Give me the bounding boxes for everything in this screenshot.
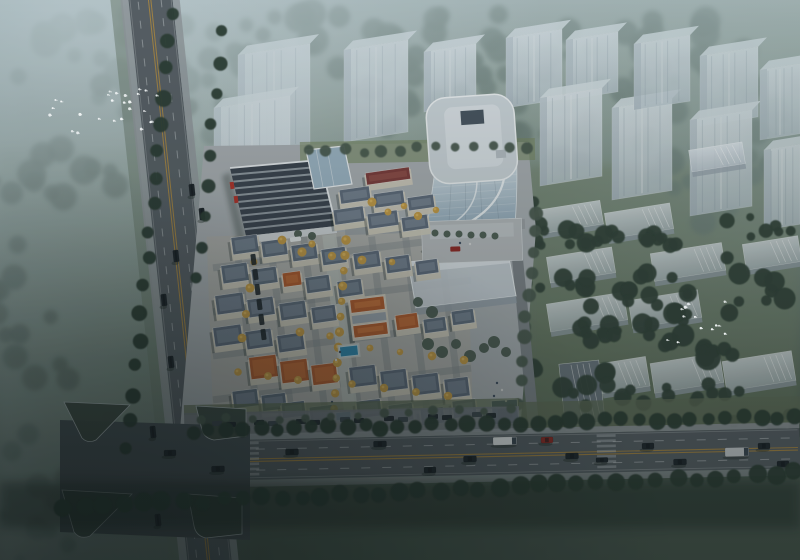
bird [113, 120, 115, 122]
bird [76, 131, 79, 134]
bird-wing [726, 302, 727, 303]
bird [700, 327, 703, 330]
bird-wing [122, 119, 123, 120]
bird-wing [152, 122, 153, 123]
bird-wing [131, 102, 132, 103]
bird [52, 107, 54, 109]
bird-wing [702, 328, 703, 329]
bird-wing [679, 342, 680, 343]
bird-wing [147, 90, 148, 91]
bird [124, 94, 127, 97]
bird [98, 118, 100, 120]
bird-wing [54, 108, 55, 109]
bird [682, 315, 684, 317]
bird-wing [79, 133, 80, 134]
bird [718, 325, 720, 327]
rendering-canvas [0, 0, 800, 560]
bird [140, 128, 143, 131]
bird [143, 110, 145, 112]
bird [715, 324, 717, 326]
bird [111, 99, 114, 102]
bird-wing [683, 309, 684, 310]
bird [687, 303, 690, 306]
bird-wing [686, 307, 687, 308]
bird-wing [115, 121, 116, 122]
bird-wing [56, 100, 57, 101]
bird-wing [158, 95, 159, 96]
bird-wing [62, 101, 63, 102]
bird-wing [140, 89, 141, 90]
bird-wing [100, 119, 101, 120]
bird-wing [111, 91, 112, 92]
bird-wing [668, 340, 669, 341]
bird [680, 308, 682, 310]
bird-wing [109, 95, 110, 96]
bird-wing [142, 129, 143, 130]
bird [60, 101, 62, 103]
bird [54, 99, 56, 101]
bird-wing [117, 93, 118, 94]
bird-wing [139, 94, 140, 95]
bird [71, 130, 73, 132]
bird-wing [684, 316, 685, 317]
bird [128, 107, 131, 110]
aerial-rendering [0, 0, 800, 560]
bird [107, 94, 109, 96]
bird-wing [689, 304, 690, 305]
bird [145, 89, 147, 91]
bird-wing [81, 114, 82, 115]
bird [724, 333, 726, 335]
bird-wing [73, 131, 74, 132]
bird [684, 306, 687, 309]
bird-wing [51, 115, 52, 116]
bird [149, 121, 151, 123]
bird [115, 92, 118, 95]
bird [666, 339, 668, 341]
bird-wing [131, 109, 132, 110]
bird-wing [713, 329, 714, 330]
bird [724, 301, 726, 303]
bird [120, 118, 123, 121]
bird-wing [153, 121, 154, 122]
color-tint [0, 0, 800, 560]
bird [155, 94, 157, 96]
bird [109, 90, 111, 92]
bird-wing [126, 95, 127, 96]
bird [123, 101, 125, 103]
bird [138, 88, 140, 90]
bird-wing [696, 317, 697, 318]
bird [78, 113, 81, 116]
bird [128, 100, 131, 103]
bird [694, 316, 696, 318]
bird [137, 93, 139, 95]
bird-wing [145, 111, 146, 112]
bird-wing [113, 100, 114, 101]
bird-wing [720, 326, 721, 327]
bird [677, 341, 679, 343]
bird [711, 328, 713, 330]
bird-wing [726, 334, 727, 335]
bird [48, 113, 51, 116]
bird-wing [125, 102, 126, 103]
